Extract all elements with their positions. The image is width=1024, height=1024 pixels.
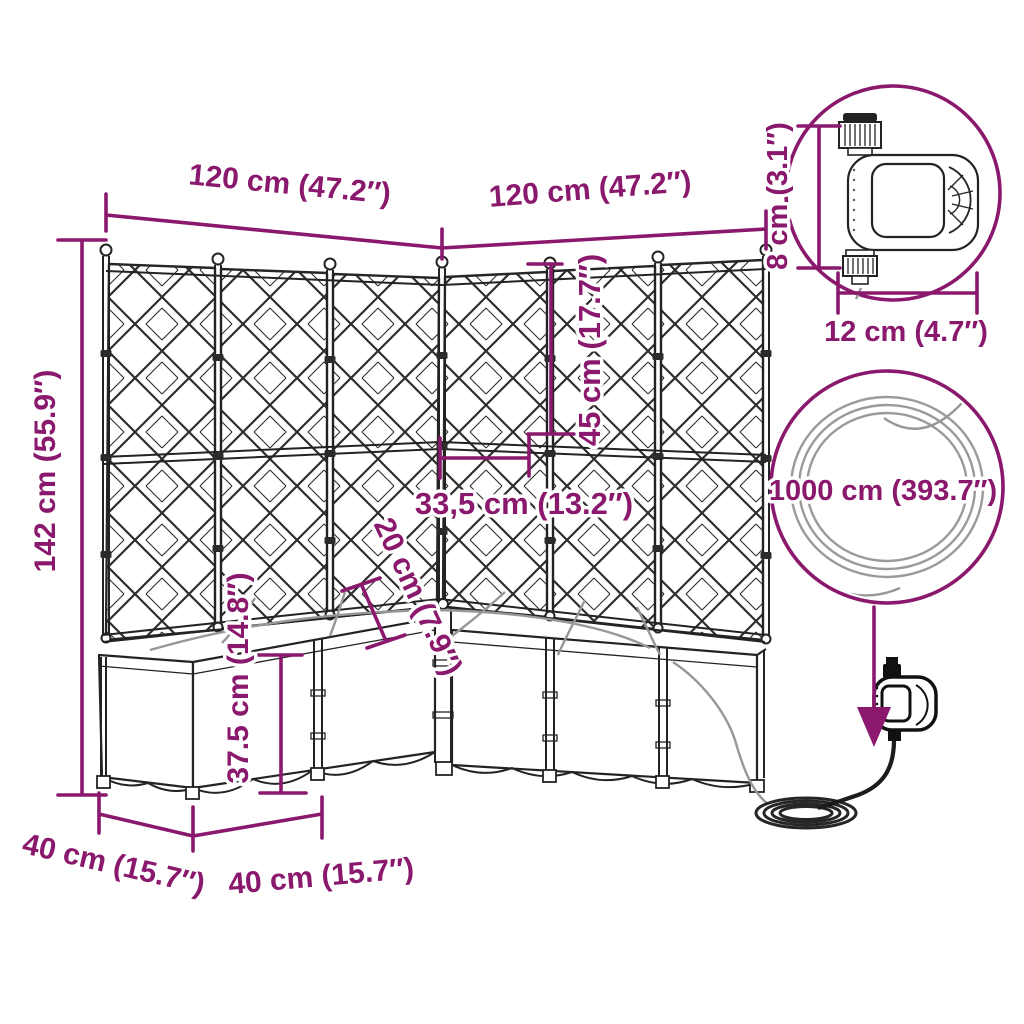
dimension-front-depth: 40 cm (15.7″) bbox=[193, 797, 415, 901]
planter-box-height-label: 37.5 cm (14.8″) bbox=[222, 572, 255, 783]
hose-detail-circle: 1000 cm (393.7″) bbox=[769, 371, 1003, 603]
dimension-total-height: 142 cm (55.9″) bbox=[29, 240, 106, 795]
planter-left-side-face bbox=[99, 655, 193, 788]
trellis-post-corner bbox=[437, 257, 448, 609]
trellis-post bbox=[761, 245, 772, 644]
trellis-post bbox=[653, 252, 664, 633]
side-depth-label: 40 cm (15.7″) bbox=[19, 827, 208, 901]
dimension-top-right-width: 120 cm (47.2″) bbox=[442, 165, 766, 249]
ground-timer-icon bbox=[874, 657, 936, 741]
top-left-width-label: 120 cm (47.2″) bbox=[187, 158, 392, 210]
total-height-label: 142 cm (55.9″) bbox=[29, 370, 62, 573]
front-depth-label: 40 cm (15.7″) bbox=[227, 852, 415, 901]
dimension-top-left-width: 120 cm (47.2″) bbox=[106, 158, 442, 259]
trellis-panel-6 bbox=[661, 260, 763, 640]
dimension-side-depth: 40 cm (15.7″) bbox=[19, 793, 208, 901]
timer-height-label: 8 cm (3.1″) bbox=[762, 122, 794, 270]
panel-section-width-label: 33,5 cm (13.2″) bbox=[415, 486, 633, 521]
upper-trellis-height-label: 45 cm (17.7″) bbox=[572, 254, 607, 446]
top-right-width-label: 120 cm (47.2″) bbox=[488, 165, 693, 214]
planter-right-end bbox=[757, 649, 766, 778]
ground-timer-hose bbox=[818, 740, 894, 808]
trellis-panels bbox=[104, 260, 766, 640]
planter-right-front-face bbox=[452, 630, 757, 783]
diagram-canvas: 120 cm (47.2″) 120 cm (47.2″) 142 cm (55… bbox=[0, 0, 1024, 1024]
hose-length-label: 1000 cm (393.7″) bbox=[769, 475, 997, 507]
product-dimension-diagram: 120 cm (47.2″) 120 cm (47.2″) 142 cm (55… bbox=[0, 0, 1024, 1024]
trellis-post bbox=[325, 259, 336, 620]
timer-width-label: 12 cm (4.7″) bbox=[824, 316, 988, 348]
